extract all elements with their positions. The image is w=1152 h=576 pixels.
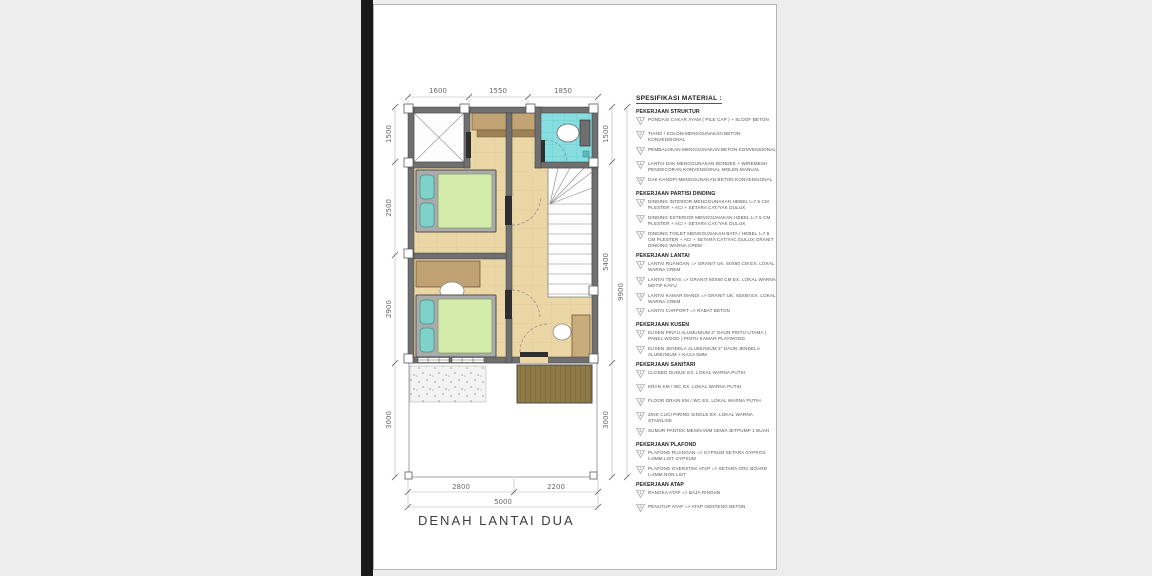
item-number-triangle-icon: 2 xyxy=(636,466,645,474)
spec-section-title: PEKERJAAN STRUKTUR xyxy=(636,109,777,115)
door-leaf xyxy=(505,290,512,319)
floor-plan-drawing: 1600 1550 1850 1500 2500 2900 3000 xyxy=(0,0,1152,576)
spec-item: 3LANTAI KAMAR MANDI => GRANIT UK. 60X60 … xyxy=(636,293,777,305)
spec-item: 2KUSEN JENDELA ALUMUNIUM 3" DAUN JENDELA… xyxy=(636,346,777,358)
item-number-triangle-icon: 5 xyxy=(636,177,645,185)
item-number-triangle-icon: 2 xyxy=(636,215,645,223)
mattress xyxy=(438,299,492,353)
spec-item-text: PONDASI CAKAR AYAM ( PILE CAP ) + SLOOF … xyxy=(648,117,769,123)
spec-section-title: PEKERJAAN KUSEN xyxy=(636,322,777,328)
spec-section-title: PEKERJAAN LANTAI xyxy=(636,253,777,259)
spec-item-text: KRAN KM / WC EX. LOKAL WARNA PUTIH xyxy=(648,384,741,390)
wood-balcony-deck xyxy=(517,365,592,403)
item-number-triangle-icon: 5 xyxy=(636,428,645,436)
item-number-triangle-icon: 3 xyxy=(636,231,645,239)
spec-heading: SPESIFIKASI MATERIAL : xyxy=(636,95,722,104)
spec-section-title: PEKERJAAN ATAP xyxy=(636,482,777,488)
concrete-dak xyxy=(410,366,486,402)
spec-item-text: RANGKA ATAP => BAJA RINGAN xyxy=(648,490,720,496)
spec-item-text: PENUTUP ATAP => ATAP GENTENG BETON xyxy=(648,504,745,510)
bathroom xyxy=(541,113,592,162)
spec-item: 3PEMBALOKAN MENGGUNAKAN BETON KONVENSION… xyxy=(636,147,777,157)
dim-label: 3000 xyxy=(385,411,393,429)
spec-item-text: DINDING EXTERIOR MENGGUNAKAN HEBEL t=7.5… xyxy=(648,215,777,227)
openings xyxy=(418,357,548,363)
spec-item-text: ZINK CUCI PIRING SINGLE EX. LOKAL WARNA … xyxy=(648,412,777,424)
item-number-triangle-icon: 3 xyxy=(636,398,645,406)
stairs xyxy=(548,168,592,297)
spec-item-text: LANTAI CARPORT => RABAT BETON xyxy=(648,308,730,314)
drawing-viewer: { "page": { "title": "DENAH LANTAI DUA" … xyxy=(0,0,1152,576)
dim-label: 1600 xyxy=(429,87,447,95)
spec-item: 1KUSEN PINTU ALUMUNIUM 3" DAUN PINTU UTA… xyxy=(636,330,777,342)
pillow xyxy=(420,300,434,324)
item-number-triangle-icon: 1 xyxy=(636,490,645,498)
spec-item: 1DINDING INTERIOR MENGGUNAKAN HEBEL t=7.… xyxy=(636,199,777,211)
spec-item-text: DINDING TOILET MENGGUNAKAN BATA / HEBEL … xyxy=(648,231,777,249)
spec-item-text: DAK KANOPI MENGGUNAKAN BETON KONVENSIONA… xyxy=(648,177,773,183)
spec-item-text: CLOSED DUDUK EX. LOKAL WARNA PUTIH xyxy=(648,370,746,376)
spec-section: PEKERJAAN PLAFOND1PLAFOND RUANGAN => GYP… xyxy=(636,442,777,478)
bed-2 xyxy=(416,295,496,357)
spec-section: PEKERJAAN ATAP1RANGKA ATAP => BAJA RINGA… xyxy=(636,482,777,514)
item-number-triangle-icon: 1 xyxy=(636,450,645,458)
dim-label: 3000 xyxy=(602,411,610,429)
door-leaf xyxy=(505,196,512,225)
floor-drain xyxy=(583,151,589,157)
terrace-outline xyxy=(409,363,597,477)
spec-item-text: LANTAI KAMAR MANDI => GRANIT UK. 60X60 E… xyxy=(648,293,777,305)
item-number-triangle-icon: 2 xyxy=(636,346,645,354)
item-number-triangle-icon: 3 xyxy=(636,147,645,155)
spec-item-text: LANTAI DAK MENGGUNAKAN BONDEK + WIREMESH… xyxy=(648,161,777,173)
spec-section: PEKERJAAN SANITARI1CLOSED DUDUK EX. LOKA… xyxy=(636,362,777,438)
spec-item: 1RANGKA ATAP => BAJA RINGAN xyxy=(636,490,777,500)
spec-item-text: LANTAI TERAS => GRANIT 60X60 CM EX. LOKA… xyxy=(648,277,777,289)
door-opening xyxy=(520,357,548,363)
pillow xyxy=(420,328,434,352)
spec-item: 1LANTAI RUANGAN => GRANIT UK. 60X60 CM E… xyxy=(636,261,777,273)
spec-section: PEKERJAAN PARTISI DINDING1DINDING INTERI… xyxy=(636,191,777,249)
spec-item: 5SUMUR PANTEK MESIN 50M SEWA JETPUMP 1 B… xyxy=(636,428,777,438)
spec-item-text: SUMUR PANTEK MESIN 50M SEWA JETPUMP 1 BU… xyxy=(648,428,769,434)
spec-panel: SPESIFIKASI MATERIAL : PEKERJAAN STRUKTU… xyxy=(636,87,777,518)
item-number-triangle-icon: 2 xyxy=(636,277,645,285)
dim-label: 2800 xyxy=(452,483,470,491)
spec-item-text: KUSEN JENDELA ALUMUNIUM 3" DAUN JENDELA … xyxy=(648,346,777,358)
chair xyxy=(553,324,571,340)
dim-label: 1500 xyxy=(602,125,610,143)
spec-item: 2PLAFOND OVERSTEK ATAP => SETARA GRC BOA… xyxy=(636,466,777,478)
window xyxy=(418,358,449,363)
dim-label: 1850 xyxy=(554,87,572,95)
spec-item: 2KRAN KM / WC EX. LOKAL WARNA PUTIH xyxy=(636,384,777,394)
spec-item-text: FLOOR DRAIN KM / WC EX. LOKAL WARNA PUTI… xyxy=(648,398,761,404)
item-number-triangle-icon: 4 xyxy=(636,308,645,316)
spec-item: 3DINDING TOILET MENGGUNAKAN BATA / HEBEL… xyxy=(636,231,777,249)
spec-item: 2DINDING EXTERIOR MENGGUNAKAN HEBEL t=7.… xyxy=(636,215,777,227)
door-leaf xyxy=(520,352,548,357)
spec-item: 5DAK KANOPI MENGGUNAKAN BETON KONVENSION… xyxy=(636,177,777,187)
void-room xyxy=(414,113,464,162)
spec-item: 4ZINK CUCI PIRING SINGLE EX. LOKAL WARNA… xyxy=(636,412,777,424)
wardrobe xyxy=(472,113,535,137)
item-number-triangle-icon: 2 xyxy=(636,504,645,512)
spec-item-text: DINDING INTERIOR MENGGUNAKAN HEBEL t=7.5… xyxy=(648,199,777,211)
door-leaf xyxy=(466,132,471,158)
spec-item: 1CLOSED DUDUK EX. LOKAL WARNA PUTIH xyxy=(636,370,777,380)
spec-item-text: PEMBALOKAN MENGGUNAKAN BETON KONVENSIONA… xyxy=(648,147,776,153)
item-number-triangle-icon: 1 xyxy=(636,330,645,338)
spec-section: PEKERJAAN STRUKTUR1PONDASI CAKAR AYAM ( … xyxy=(636,109,777,187)
item-number-triangle-icon: 1 xyxy=(636,117,645,125)
spec-sections: PEKERJAAN STRUKTUR1PONDASI CAKAR AYAM ( … xyxy=(636,109,777,514)
dim-label: 1500 xyxy=(385,125,393,143)
pillow xyxy=(420,175,434,199)
spec-item: 1PLAFOND RUANGAN => GYPSUM SETARA GYPROX… xyxy=(636,450,777,462)
spec-item-text: TIANG / KOLOM MENGGUNAKAN BETON KONVENSI… xyxy=(648,131,777,143)
spec-item: 2PENUTUP ATAP => ATAP GENTENG BETON xyxy=(636,504,777,514)
dim-label: 1550 xyxy=(489,87,507,95)
door-leaf xyxy=(541,140,545,162)
spec-item-text: PLAFOND OVERSTEK ATAP => SETARA GRC BOAR… xyxy=(648,466,777,478)
dim-label: 2500 xyxy=(385,199,393,217)
pillow xyxy=(420,203,434,227)
item-number-triangle-icon: 1 xyxy=(636,199,645,207)
item-number-triangle-icon: 1 xyxy=(636,370,645,378)
dim-label: 2900 xyxy=(385,300,393,318)
spec-item: 2LANTAI TERAS => GRANIT 60X60 CM EX. LOK… xyxy=(636,277,777,289)
spec-section: PEKERJAAN LANTAI1LANTAI RUANGAN => GRANI… xyxy=(636,253,777,319)
spec-item-text: LANTAI RUANGAN => GRANIT UK. 60X60 CM EX… xyxy=(648,261,777,273)
item-number-triangle-icon: 2 xyxy=(636,384,645,392)
spec-section-title: PEKERJAAN PLAFOND xyxy=(636,442,777,448)
spec-item-text: KUSEN PINTU ALUMUNIUM 3" DAUN PINTU UTAM… xyxy=(648,330,777,342)
item-number-triangle-icon: 4 xyxy=(636,161,645,169)
spec-item: 1PONDASI CAKAR AYAM ( PILE CAP ) + SLOOF… xyxy=(636,117,777,127)
dim-label: 9900 xyxy=(617,283,625,301)
spec-item: 4LANTAI DAK MENGGUNAKAN BONDEK + WIREMES… xyxy=(636,161,777,173)
window xyxy=(452,358,484,363)
item-number-triangle-icon: 4 xyxy=(636,412,645,420)
spec-section: PEKERJAAN KUSEN1KUSEN PINTU ALUMUNIUM 3"… xyxy=(636,322,777,358)
item-number-triangle-icon: 1 xyxy=(636,261,645,269)
bed-1 xyxy=(416,170,496,232)
spec-item: 4LANTAI CARPORT => RABAT BETON xyxy=(636,308,777,318)
item-number-triangle-icon: 2 xyxy=(636,131,645,139)
dim-label: 2200 xyxy=(547,483,565,491)
plan-title: DENAH LANTAI DUA xyxy=(418,513,575,528)
spec-item: 2TIANG / KOLOM MENGGUNAKAN BETON KONVENS… xyxy=(636,131,777,143)
dim-label: 5400 xyxy=(602,253,610,271)
item-number-triangle-icon: 3 xyxy=(636,293,645,301)
spec-item-text: PLAFOND RUANGAN => GYPSUM SETARA GYPROX … xyxy=(648,450,777,462)
spec-section-title: PEKERJAAN PARTISI DINDING xyxy=(636,191,777,197)
spec-section-title: PEKERJAAN SANITARI xyxy=(636,362,777,368)
mattress xyxy=(438,174,492,228)
dim-label: 5000 xyxy=(494,498,512,506)
spec-item: 3FLOOR DRAIN KM / WC EX. LOKAL WARNA PUT… xyxy=(636,398,777,408)
